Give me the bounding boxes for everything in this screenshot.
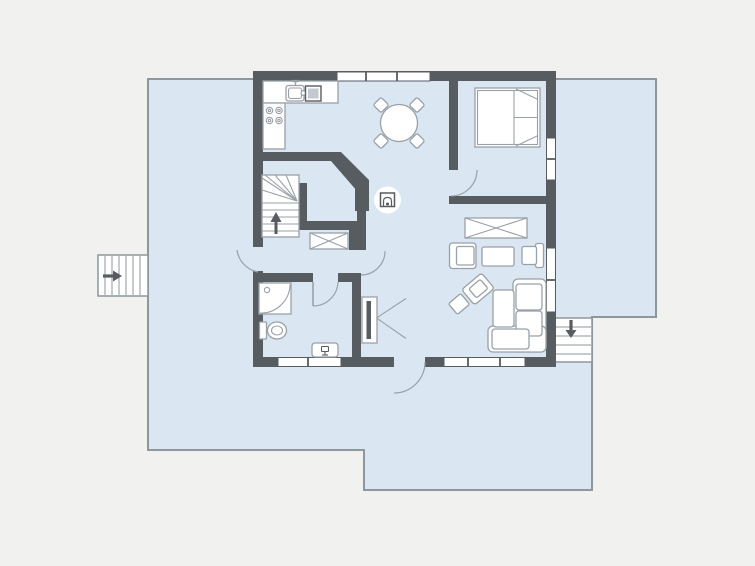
fireplace-block	[355, 186, 369, 211]
west-entry-stairs	[98, 255, 148, 296]
interior-staircase	[262, 175, 299, 237]
corner-shower	[259, 283, 291, 314]
living-wardrobe	[465, 218, 527, 238]
toilet	[260, 322, 287, 339]
window-living-south	[444, 358, 525, 367]
window-bathroom-south	[278, 358, 341, 367]
wall-bathroom-north-left	[253, 273, 313, 282]
wall-stair-nook-horiz	[299, 221, 357, 230]
flame-icon	[386, 203, 389, 206]
dining-area	[373, 97, 425, 149]
window-bedroom-east	[547, 138, 556, 180]
corner-sofa	[488, 279, 546, 352]
southeast-stairs	[553, 318, 592, 362]
wall-east	[546, 71, 556, 367]
window-living-east	[547, 248, 556, 312]
side-chair	[522, 244, 544, 268]
coffee-table	[482, 247, 514, 266]
bedroom	[475, 88, 540, 147]
wall-bathroom-east	[352, 273, 361, 367]
fireplace	[374, 187, 401, 214]
dining-table	[381, 105, 418, 142]
wall-bedroom-west	[449, 81, 458, 170]
hall-wardrobe	[310, 233, 348, 249]
armchair	[450, 243, 477, 269]
wall-hall-north	[263, 152, 332, 161]
washbasin	[312, 343, 338, 357]
floor-plan	[0, 0, 755, 566]
wall-bedroom-south	[449, 196, 556, 204]
window-north	[337, 72, 430, 81]
